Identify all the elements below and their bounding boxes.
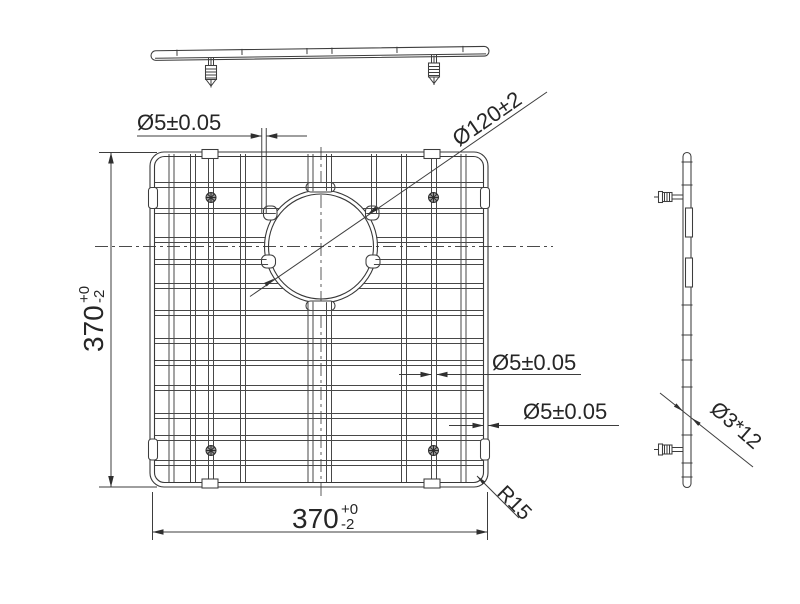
screw-head <box>429 446 439 456</box>
screw-head <box>206 193 216 203</box>
dim-value: 370 <box>78 305 109 352</box>
ring-tab-southwest <box>262 255 276 268</box>
side-clip-right-bottom <box>481 439 490 460</box>
dim-label: Ø5±0.05 <box>492 350 576 375</box>
dim-label: Ø5±0.05 <box>523 399 607 424</box>
top-bar <box>151 46 489 60</box>
screw-head <box>206 446 216 456</box>
dimension-overall-height: 370 +0 -2 <box>76 153 157 488</box>
dim-label: Ø5±0.05 <box>137 110 221 135</box>
side-view <box>654 153 693 488</box>
side-bar <box>683 153 691 488</box>
dim-tolerance-lower: -2 <box>91 290 108 303</box>
side-foot-bottom <box>654 444 683 455</box>
frame-inner <box>155 157 484 483</box>
grid-horizontal-wires <box>154 183 484 466</box>
grid-foot-right <box>429 55 440 85</box>
ring-tab-southeast <box>366 255 380 268</box>
frame-tab-top-right <box>424 150 440 159</box>
dim-value: 370 <box>292 503 339 534</box>
side-clip-left-top <box>149 188 158 209</box>
dim-label: Ø120±2 <box>448 86 527 151</box>
grid-foot-left <box>206 58 217 88</box>
frame-outer <box>150 152 488 487</box>
side-foot-top <box>654 192 683 203</box>
side-clip-right-top <box>481 188 490 209</box>
dim-tolerance-lower: -2 <box>341 516 354 533</box>
dimension-wire-diameter-mid: Ø5±0.05 <box>399 350 581 377</box>
frame-tab-bottom-left <box>202 479 218 488</box>
drawing-page: Ø5±0.05 Ø120±2 Ø5±0.05 Ø5±0.05 R15 <box>0 0 800 604</box>
ring-tab-south <box>306 301 335 311</box>
dim-label: Ø3*12 <box>706 397 766 453</box>
side-clip-left-bottom <box>149 439 158 460</box>
frame-tab-top-left <box>202 150 218 159</box>
dimension-wire-diameter-top: Ø5±0.05 <box>137 110 307 139</box>
side-clip-edge-top <box>686 208 693 237</box>
frame-tab-bottom-right <box>424 479 440 488</box>
front-view <box>95 128 553 500</box>
side-clip-edge-bottom <box>686 258 693 287</box>
top-view <box>151 46 489 88</box>
dim-label: R15 <box>492 481 536 525</box>
dimension-corner-radius: R15 <box>477 476 536 525</box>
screw-head <box>429 193 439 203</box>
technical-drawing-canvas: Ø5±0.05 Ø120±2 Ø5±0.05 Ø5±0.05 R15 <box>0 0 800 604</box>
dimension-overall-width: 370 +0 -2 <box>153 492 488 540</box>
dimension-foot-screw: Ø3*12 <box>660 393 766 467</box>
